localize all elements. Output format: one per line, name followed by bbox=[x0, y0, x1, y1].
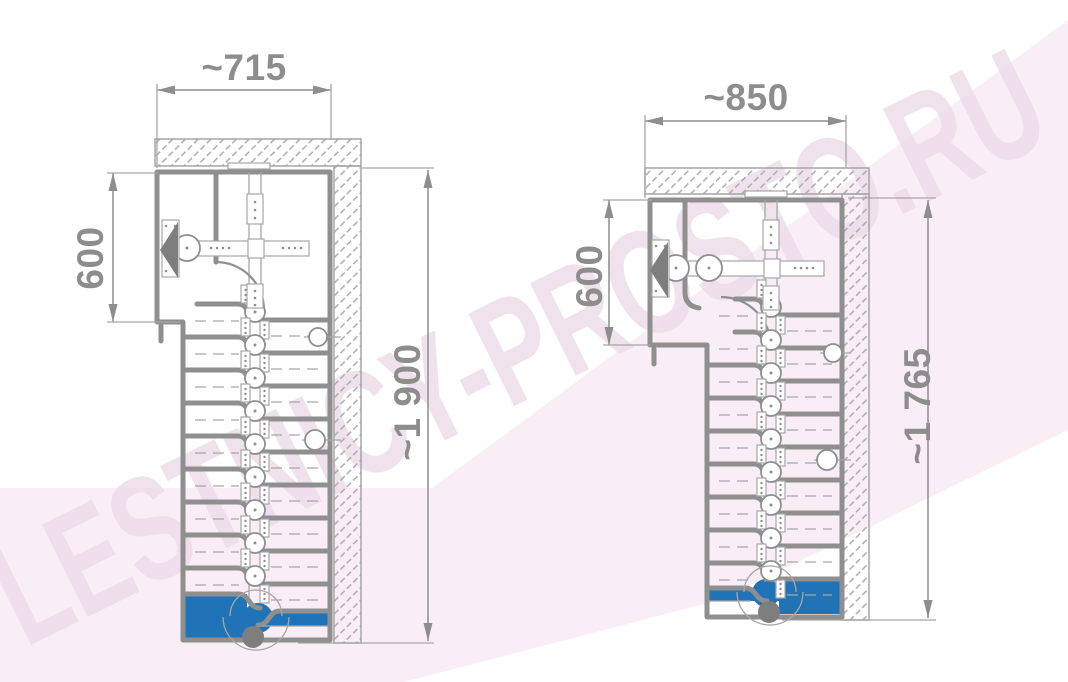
dim-label-landing-right: 600 bbox=[569, 244, 610, 307]
joint-center-dot bbox=[770, 372, 773, 375]
dim-label-width-right: ~850 bbox=[703, 77, 788, 118]
screw-dot bbox=[165, 225, 168, 228]
newel-post bbox=[242, 626, 264, 648]
screw-dot bbox=[294, 247, 297, 250]
screw-dot bbox=[244, 294, 246, 296]
screw-dot bbox=[770, 292, 773, 295]
screw-dot bbox=[300, 247, 303, 250]
screw-dot bbox=[244, 492, 246, 494]
screw-dot bbox=[760, 515, 762, 517]
screw-dot bbox=[244, 525, 246, 527]
screw-dot bbox=[779, 484, 781, 486]
screw-dot bbox=[760, 360, 762, 362]
screw-dot bbox=[779, 390, 781, 392]
screw-dot bbox=[263, 428, 265, 430]
screw-dot bbox=[779, 324, 781, 326]
screw-dot bbox=[760, 393, 762, 395]
screw-dot bbox=[244, 360, 246, 362]
screw-dot bbox=[760, 454, 762, 456]
screw-dot bbox=[760, 350, 762, 352]
screw-dot bbox=[779, 329, 781, 331]
screw-dot bbox=[244, 426, 246, 428]
dimension-arrowhead bbox=[645, 117, 663, 126]
screw-dot bbox=[263, 423, 265, 425]
screw-dot bbox=[760, 553, 762, 555]
screw-dot bbox=[770, 299, 773, 302]
joint-center-dot bbox=[254, 476, 257, 479]
screw-dot bbox=[244, 431, 246, 433]
screw-dot bbox=[794, 267, 797, 270]
baluster-symbol bbox=[824, 344, 842, 362]
joint-center-dot bbox=[254, 344, 257, 347]
newel-post bbox=[758, 601, 780, 623]
screw-dot bbox=[760, 525, 762, 527]
screw-dot bbox=[263, 588, 265, 590]
joint-center-dot bbox=[254, 311, 257, 314]
screw-dot bbox=[779, 517, 781, 519]
screw-dot bbox=[760, 558, 762, 560]
joint-center-dot bbox=[186, 247, 189, 250]
joint-center-dot bbox=[254, 377, 257, 380]
screw-dot bbox=[263, 390, 265, 392]
screw-dot bbox=[263, 395, 265, 397]
first-step-highlight bbox=[183, 594, 247, 638]
screw-dot bbox=[760, 487, 762, 489]
screw-dot bbox=[779, 418, 781, 420]
screw-dot bbox=[244, 487, 246, 489]
screw-dot bbox=[779, 593, 781, 595]
screw-dot bbox=[779, 423, 781, 425]
stringer-bracket bbox=[764, 259, 780, 278]
screw-dot bbox=[760, 388, 762, 390]
screw-dot bbox=[263, 560, 265, 562]
joint-center-dot bbox=[770, 537, 773, 540]
screw-dot bbox=[655, 245, 658, 248]
screw-dot bbox=[244, 520, 246, 522]
dimension-arrowhead bbox=[109, 304, 118, 322]
wall-fixing-notch bbox=[745, 191, 787, 197]
screw-dot bbox=[263, 466, 265, 468]
screw-dot bbox=[254, 304, 257, 307]
dim-label-height-left: ~1 900 bbox=[387, 343, 428, 460]
joint-center-dot bbox=[675, 267, 678, 270]
screw-dot bbox=[244, 454, 246, 456]
screw-dot bbox=[779, 319, 781, 321]
screw-dot bbox=[779, 555, 781, 557]
screw-dot bbox=[244, 553, 246, 555]
screw-dot bbox=[770, 226, 773, 229]
baluster-symbol bbox=[817, 450, 837, 470]
screw-dot bbox=[244, 497, 246, 499]
screw-dot bbox=[779, 560, 781, 562]
wall-hatched-top bbox=[155, 139, 361, 166]
staircase-technical-drawing: LESTNICY-PROSTO.RU ~715 600 ~1 900 ~850 … bbox=[0, 0, 1068, 682]
screw-dot bbox=[263, 357, 265, 359]
screw-dot bbox=[760, 327, 762, 329]
screw-dot bbox=[779, 385, 781, 387]
screw-dot bbox=[263, 489, 265, 491]
screw-dot bbox=[760, 459, 762, 461]
screw-dot bbox=[254, 217, 257, 220]
dimension-arrowhead bbox=[924, 600, 933, 618]
screw-dot bbox=[263, 334, 265, 336]
screw-dot bbox=[244, 464, 246, 466]
screw-dot bbox=[779, 461, 781, 463]
screw-dot bbox=[770, 306, 773, 309]
screw-dot bbox=[263, 527, 265, 529]
screw-dot bbox=[244, 322, 246, 324]
screw-dot bbox=[244, 398, 246, 400]
screw-dot bbox=[779, 362, 781, 364]
dimension-arrowhead bbox=[157, 86, 175, 95]
screw-dot bbox=[779, 588, 781, 590]
screw-dot bbox=[779, 395, 781, 397]
dim-label-landing-left: 600 bbox=[70, 226, 111, 289]
screw-dot bbox=[244, 327, 246, 329]
joint-center-dot bbox=[254, 575, 257, 578]
screw-dot bbox=[244, 355, 246, 357]
screw-dot bbox=[263, 433, 265, 435]
joint-center-dot bbox=[770, 339, 773, 342]
wall-hatched-top bbox=[645, 168, 869, 194]
screw-dot bbox=[760, 426, 762, 428]
screw-dot bbox=[655, 290, 658, 293]
screw-dot bbox=[806, 267, 809, 270]
screw-dot bbox=[770, 242, 773, 245]
screw-dot bbox=[254, 209, 257, 212]
screw-dot bbox=[263, 522, 265, 524]
screw-dot bbox=[263, 362, 265, 364]
joint-center-dot bbox=[770, 471, 773, 474]
wall-hatched-right bbox=[842, 194, 869, 620]
screw-dot bbox=[760, 421, 762, 423]
screw-dot bbox=[779, 357, 781, 359]
screw-dot bbox=[760, 416, 762, 418]
screw-dot bbox=[244, 421, 246, 423]
baluster-symbol bbox=[305, 430, 325, 450]
screw-dot bbox=[254, 290, 257, 293]
screw-dot bbox=[244, 289, 246, 291]
screw-dot bbox=[779, 583, 781, 585]
screw-dot bbox=[244, 332, 246, 334]
dimension-arrowhead bbox=[109, 173, 118, 191]
screw-dot bbox=[779, 451, 781, 453]
screw-dot bbox=[779, 352, 781, 354]
screw-dot bbox=[779, 550, 781, 552]
screw-dot bbox=[770, 234, 773, 237]
screw-dot bbox=[263, 461, 265, 463]
screw-dot bbox=[812, 267, 815, 270]
screw-dot bbox=[779, 456, 781, 458]
screw-dot bbox=[244, 459, 246, 461]
stringer-bracket bbox=[248, 239, 264, 258]
screw-dot bbox=[263, 593, 265, 595]
screw-dot bbox=[254, 201, 257, 204]
first-step-highlight bbox=[779, 579, 841, 614]
screw-dot bbox=[263, 456, 265, 458]
baluster-symbol bbox=[309, 328, 327, 346]
screw-dot bbox=[244, 299, 246, 301]
screw-dot bbox=[760, 284, 762, 286]
screw-dot bbox=[254, 297, 257, 300]
screw-dot bbox=[210, 247, 213, 250]
screw-dot bbox=[760, 383, 762, 385]
screw-dot bbox=[282, 247, 285, 250]
screw-dot bbox=[263, 565, 265, 567]
joint-center-dot bbox=[770, 405, 773, 408]
dim-label-width-left: ~715 bbox=[201, 47, 286, 88]
screw-dot bbox=[165, 270, 168, 273]
screw-dot bbox=[244, 558, 246, 560]
screw-dot bbox=[244, 365, 246, 367]
screw-dot bbox=[760, 322, 762, 324]
screw-dot bbox=[760, 492, 762, 494]
screw-dot bbox=[760, 355, 762, 357]
wall-fixing-notch bbox=[228, 163, 270, 169]
screw-dot bbox=[244, 393, 246, 395]
screw-dot bbox=[263, 324, 265, 326]
joint-center-dot bbox=[254, 410, 257, 413]
dim-label-height-right: ~1 765 bbox=[897, 347, 938, 464]
screw-dot bbox=[760, 289, 762, 291]
screw-dot bbox=[760, 520, 762, 522]
screw-dot bbox=[779, 527, 781, 529]
screw-dot bbox=[263, 532, 265, 534]
screw-dot bbox=[779, 428, 781, 430]
joint-center-dot bbox=[770, 438, 773, 441]
screw-dot bbox=[244, 530, 246, 532]
joint-center-dot bbox=[770, 570, 773, 573]
screw-dot bbox=[222, 247, 225, 250]
dimension-arrowhead bbox=[424, 170, 433, 188]
screw-dot bbox=[760, 548, 762, 550]
screw-dot bbox=[263, 598, 265, 600]
screw-dot bbox=[779, 522, 781, 524]
joint-center-dot bbox=[254, 509, 257, 512]
screw-dot bbox=[263, 494, 265, 496]
dimension-arrowhead bbox=[313, 86, 331, 95]
joint-center-dot bbox=[254, 443, 257, 446]
screw-dot bbox=[263, 499, 265, 501]
screw-dot bbox=[779, 489, 781, 491]
screw-dot bbox=[263, 329, 265, 331]
screw-dot bbox=[244, 563, 246, 565]
screw-dot bbox=[263, 400, 265, 402]
joint-center-dot bbox=[770, 504, 773, 507]
screw-dot bbox=[760, 317, 762, 319]
joint-center-dot bbox=[254, 542, 257, 545]
screw-dot bbox=[760, 449, 762, 451]
screw-dot bbox=[228, 247, 231, 250]
screw-dot bbox=[244, 388, 246, 390]
screw-dot bbox=[800, 267, 803, 270]
screw-dot bbox=[216, 247, 219, 250]
screw-dot bbox=[263, 367, 265, 369]
screw-dot bbox=[760, 294, 762, 296]
screw-dot bbox=[760, 482, 762, 484]
screw-dot bbox=[779, 494, 781, 496]
screw-dot bbox=[263, 555, 265, 557]
wall-hatched-right bbox=[334, 166, 361, 643]
joint-center-dot bbox=[708, 267, 711, 270]
screw-dot bbox=[288, 247, 291, 250]
